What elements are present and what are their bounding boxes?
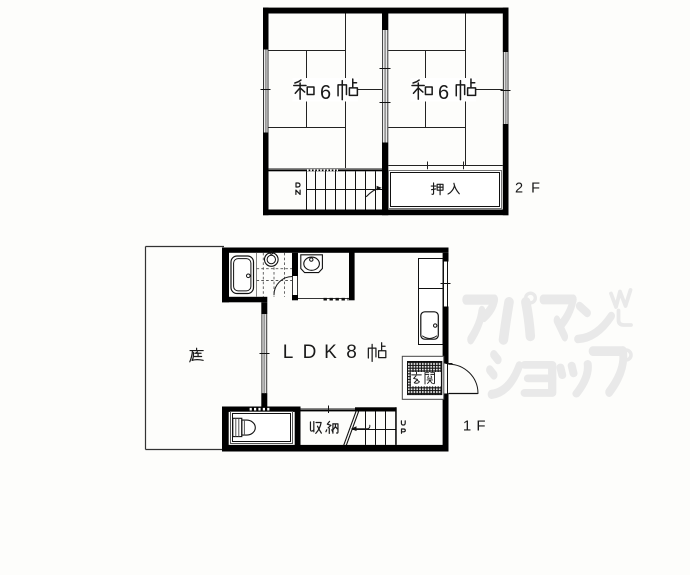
svg-text:L: L bbox=[283, 342, 294, 363]
svg-text:6: 6 bbox=[320, 82, 331, 104]
svg-text:D: D bbox=[303, 342, 317, 363]
svg-text:8: 8 bbox=[346, 342, 357, 363]
svg-text:K: K bbox=[324, 342, 337, 363]
svg-text:F: F bbox=[476, 418, 485, 435]
svg-text:1: 1 bbox=[463, 418, 471, 435]
svg-text:2: 2 bbox=[515, 181, 523, 197]
svg-text:6: 6 bbox=[438, 82, 449, 104]
svg-text:F: F bbox=[531, 181, 540, 197]
